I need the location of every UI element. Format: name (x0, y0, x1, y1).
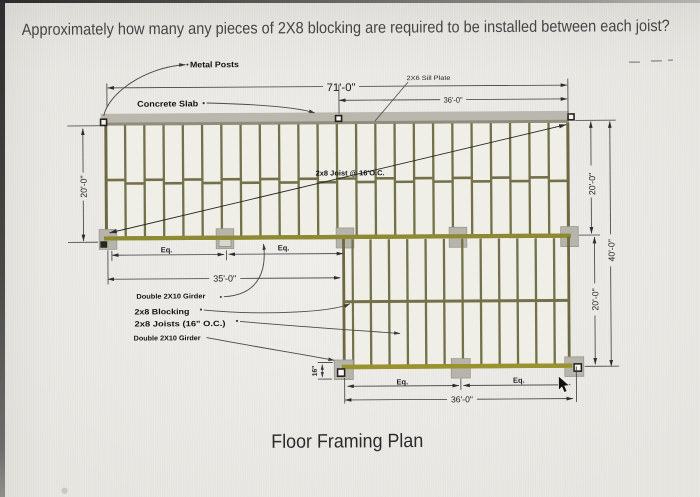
svg-text:Eq.: Eq. (397, 377, 409, 386)
svg-text:20'-0": 20'-0" (590, 288, 600, 310)
svg-text:Approximately how many any pie: Approximately how many any pieces of 2X8… (22, 17, 670, 39)
svg-text:2x8 Joist @ 16'O.C.: 2x8 Joist @ 16'O.C. (316, 168, 385, 177)
svg-text:71'-0": 71'-0" (327, 82, 356, 94)
svg-text:36'-0": 36'-0" (451, 394, 473, 404)
svg-text:20'-0": 20'-0" (79, 175, 89, 197)
svg-text:2x8 Joists (16" O.C.): 2x8 Joists (16" O.C.) (134, 319, 226, 329)
svg-text:Floor Framing Plan: Floor Framing Plan (271, 430, 423, 453)
svg-text:35'-0": 35'-0" (213, 273, 236, 283)
svg-text:Eq.: Eq. (161, 245, 173, 254)
svg-text:Concrete Slab: Concrete Slab (137, 98, 198, 108)
svg-text:Double 2X10 Girder: Double 2X10 Girder (136, 293, 205, 300)
svg-text:2x8 Blocking: 2x8 Blocking (134, 307, 189, 316)
svg-text:Eq.: Eq. (513, 376, 525, 385)
svg-text:20'-0": 20'-0" (587, 173, 597, 195)
svg-text:Double 2X10 Girder: Double 2X10 Girder (134, 335, 201, 342)
svg-text:2X6 Sill Plate: 2X6 Sill Plate (406, 75, 451, 82)
svg-text:36'-0": 36'-0" (444, 96, 463, 105)
svg-text:40'-0": 40'-0" (606, 239, 616, 261)
svg-text:Eq.: Eq. (278, 243, 290, 252)
svg-text:Metal Posts: Metal Posts (190, 60, 240, 69)
svg-text:16": 16" (312, 366, 319, 377)
